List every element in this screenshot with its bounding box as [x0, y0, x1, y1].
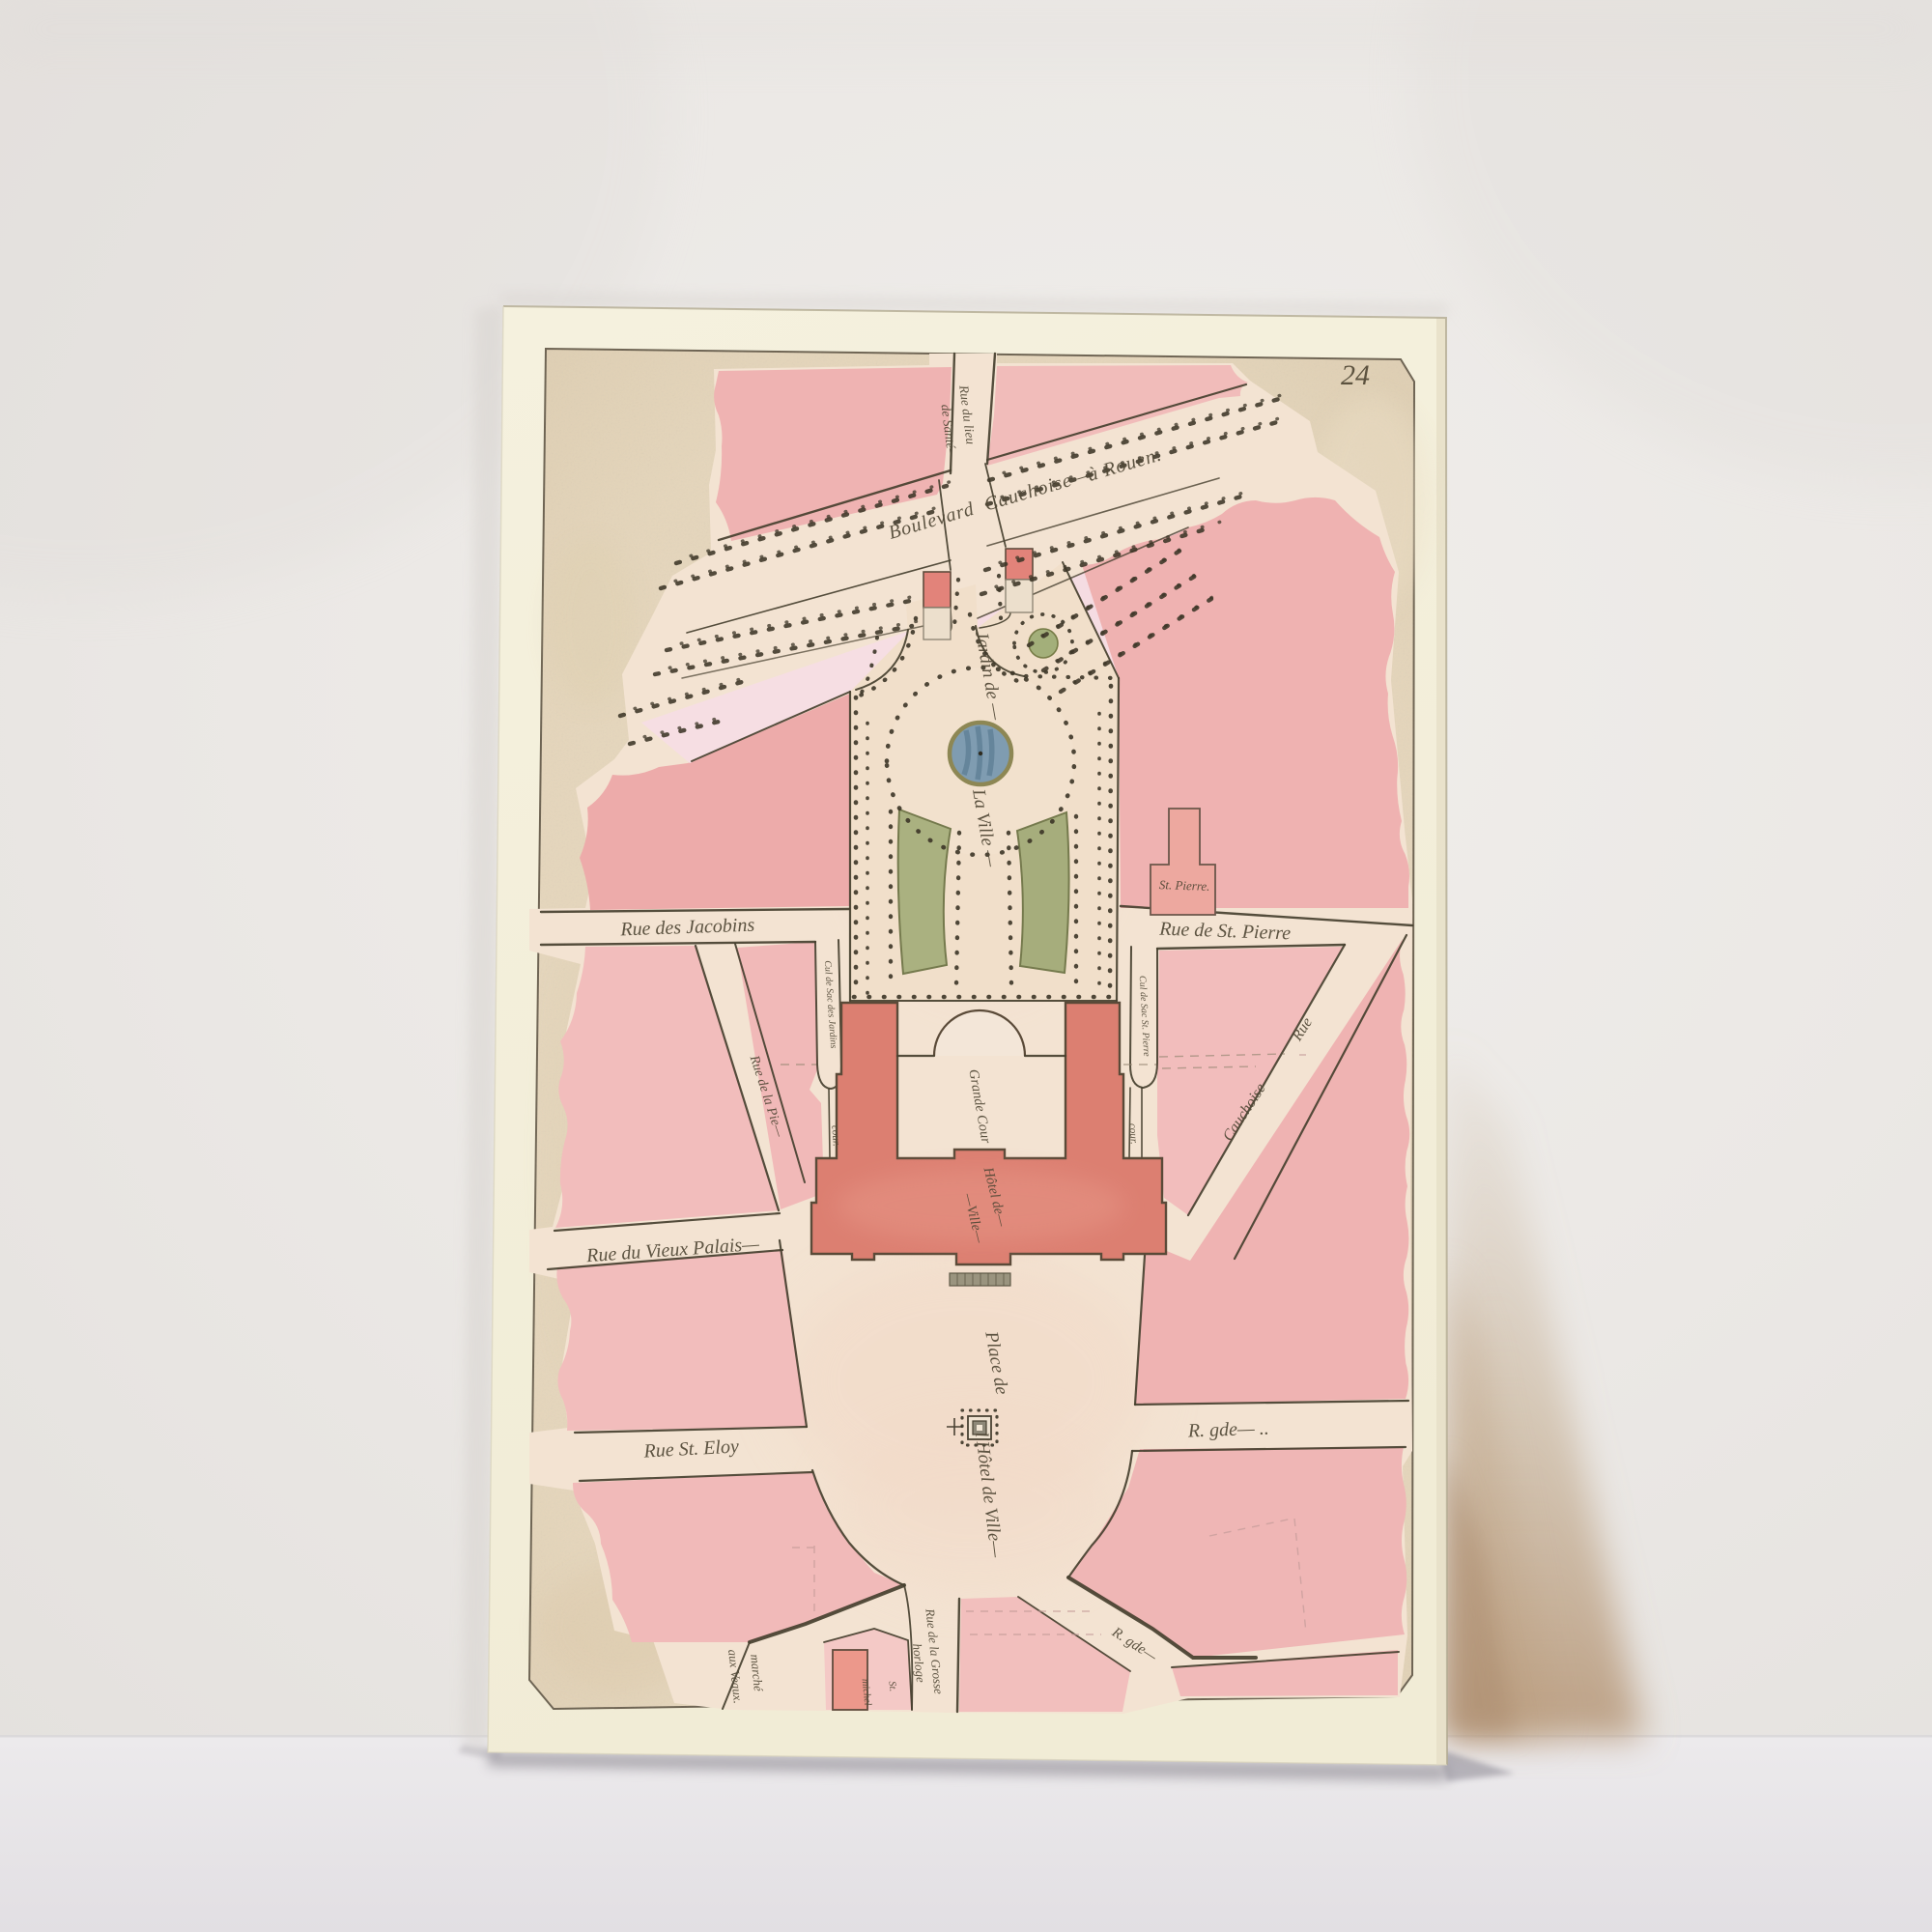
svg-text:St. Pierre.: St. Pierre.: [1159, 877, 1210, 894]
svg-text:24: 24: [1341, 359, 1370, 391]
svg-text:R. gde— ..: R. gde— ..: [1186, 1418, 1269, 1442]
svg-text:cour.: cour.: [1126, 1123, 1139, 1145]
svg-text:St.: St.: [886, 1681, 897, 1692]
svg-text:cour.: cour.: [829, 1125, 841, 1147]
